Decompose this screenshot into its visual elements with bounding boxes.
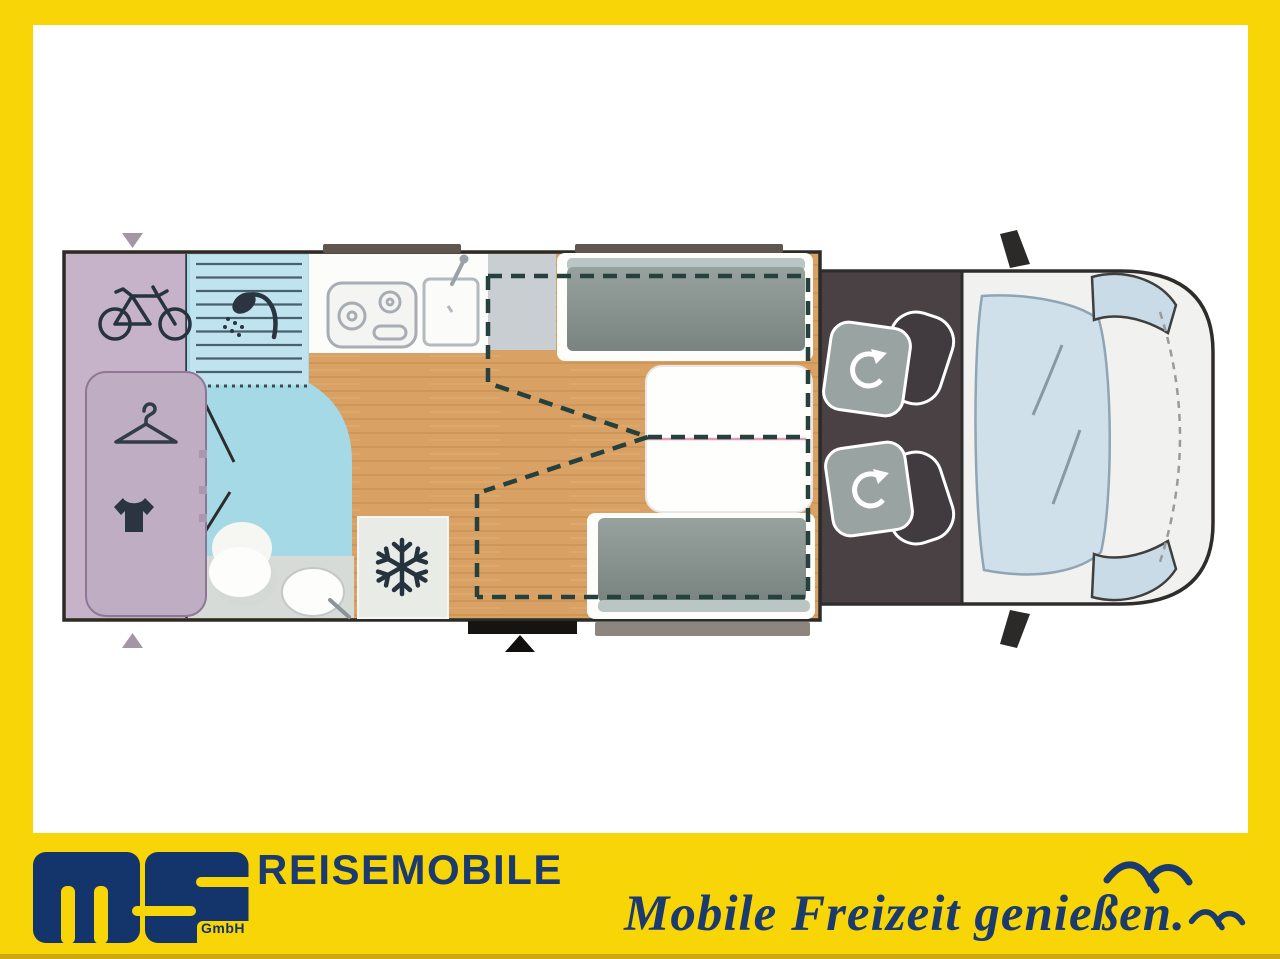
- side-mirror-top: [1000, 230, 1030, 268]
- bench-seat-rear: [587, 513, 815, 619]
- floorplan-graphic: [0, 0, 1280, 730]
- brand-division-title: REISEMOBILE: [257, 849, 563, 891]
- window-top-kitchen: [323, 244, 461, 253]
- frame-bottom-edge: [0, 954, 1280, 959]
- promo-image: GmbH REISEMOBILE Mobile Freizeit genieße…: [0, 0, 1280, 959]
- hob-icon: [328, 283, 416, 347]
- logo-gmbh-label: GmbH: [201, 921, 245, 935]
- seagull-icons: [1098, 852, 1248, 938]
- garage-door-arrow-bottom: [122, 633, 143, 648]
- wardrobe: [86, 372, 207, 616]
- window-bottom: [595, 622, 810, 636]
- seagull-icon-small: [1192, 912, 1243, 928]
- garage-door-arrow-top: [122, 233, 143, 248]
- entry-door: [468, 621, 577, 634]
- shower-tray: [190, 255, 308, 386]
- toilet-icon: [209, 522, 277, 606]
- seagull-icon-large: [1107, 865, 1189, 890]
- window-top-dinette: [575, 244, 783, 253]
- bench-seat-front: [557, 253, 813, 361]
- windshield: [975, 295, 1109, 574]
- entry-door-arrow: [505, 635, 535, 652]
- side-mirror-bottom: [1000, 610, 1030, 648]
- cupboard: [488, 254, 556, 350]
- refrigerator: [358, 517, 448, 618]
